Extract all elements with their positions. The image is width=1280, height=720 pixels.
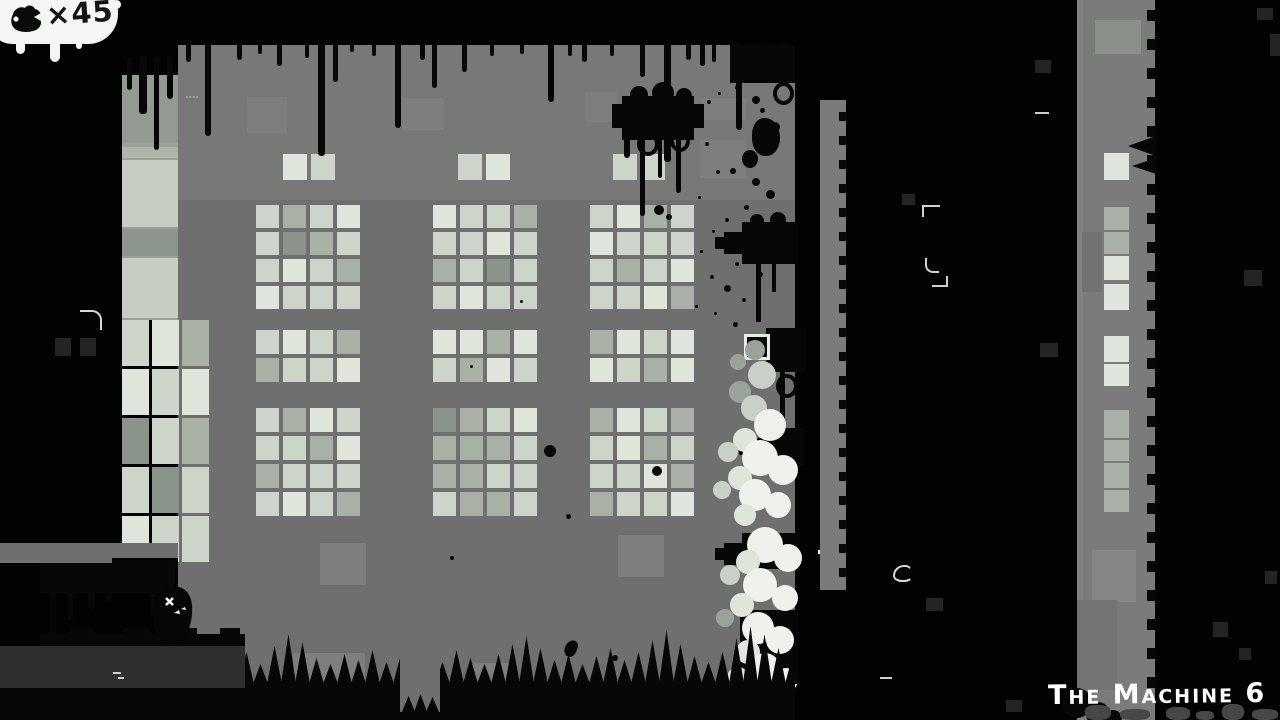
tower-tooth — [1147, 387, 1156, 398]
big-window — [460, 464, 483, 488]
big-window — [256, 408, 279, 432]
big-window — [283, 286, 306, 309]
big-window — [487, 286, 510, 309]
ink-speck — [752, 178, 760, 186]
ledge-white-speck — [118, 677, 124, 679]
big-window — [460, 205, 483, 228]
big-window — [256, 205, 279, 228]
big-window — [671, 492, 694, 516]
ink-speck — [752, 96, 760, 104]
machine-bump — [652, 82, 674, 104]
ladder-notch — [839, 304, 847, 313]
big-window — [514, 286, 537, 309]
ceiling-drip — [333, 44, 338, 82]
tower-tooth — [1147, 39, 1156, 50]
tower-window — [1104, 364, 1129, 386]
left-column-pane-grid — [122, 320, 149, 366]
left-column-pane — [122, 258, 178, 318]
foam-bubble — [765, 492, 791, 518]
ink-speck — [725, 218, 729, 222]
foam-bubble — [734, 504, 756, 526]
foam-bubble — [768, 455, 798, 485]
big-window — [644, 436, 667, 460]
ceiling-drip — [712, 44, 716, 62]
ink-speck — [707, 100, 711, 104]
big-window — [671, 259, 694, 282]
foam-bubble — [754, 409, 786, 441]
mid-window — [256, 358, 279, 382]
ink-speck — [744, 205, 749, 210]
mid-window — [283, 358, 306, 382]
machine-hook-ring — [670, 130, 690, 152]
machine-bump — [676, 88, 692, 104]
big-window — [433, 259, 456, 282]
big-window — [514, 408, 537, 432]
game-viewport[interactable]: ×45 The Machine 6 — [0, 0, 1280, 720]
mid-window — [644, 358, 667, 382]
ceiling-drip — [350, 44, 354, 52]
big-window — [644, 408, 667, 432]
ceiling-drip — [420, 44, 425, 60]
big-window — [671, 232, 694, 255]
void-square — [926, 598, 943, 611]
ladder-notch — [839, 184, 847, 193]
big-window — [644, 232, 667, 255]
ladder-notch — [839, 352, 847, 361]
chain-decal — [925, 258, 939, 273]
ink-speck — [705, 142, 709, 146]
tower-light-patch — [1092, 550, 1136, 602]
big-window — [590, 286, 613, 309]
big-window — [617, 408, 640, 432]
foam-bubble — [716, 609, 734, 627]
ledge-dark-floor — [0, 646, 245, 690]
big-window — [310, 232, 333, 255]
left-column-pane-grid — [152, 467, 179, 513]
ceiling-drip — [318, 44, 325, 156]
big-window — [617, 492, 640, 516]
ladder-notch — [839, 448, 847, 457]
tower-window — [1104, 440, 1129, 461]
ink-speck — [714, 312, 717, 315]
machine-bump — [770, 212, 786, 228]
ink-speck — [766, 190, 775, 199]
ink-speck — [735, 262, 739, 266]
tower-tooth — [1147, 445, 1156, 456]
left-column-pane-grid — [182, 516, 209, 562]
big-window — [337, 205, 360, 228]
big-window — [337, 464, 360, 488]
left-column-pane-grid — [122, 369, 149, 415]
big-window — [433, 232, 456, 255]
mid-window — [487, 358, 510, 382]
big-window — [617, 464, 640, 488]
mid-window — [460, 358, 483, 382]
void-square — [1239, 648, 1251, 660]
hud-bubble-drip — [16, 40, 25, 54]
big-window — [337, 232, 360, 255]
ground-ink-left — [0, 688, 245, 720]
big-window — [671, 408, 694, 432]
wall-light-patch — [320, 543, 366, 585]
big-window — [514, 492, 537, 516]
foam-bubble — [730, 354, 746, 370]
collectible-counter-bubble: ×45 — [0, 0, 118, 44]
mid-window — [310, 330, 333, 354]
tower-window — [1104, 336, 1129, 362]
ink-speck — [712, 230, 715, 233]
tower-tooth — [1147, 358, 1156, 369]
foam-bubble — [748, 361, 776, 389]
big-window — [256, 259, 279, 282]
mid-window — [644, 330, 667, 354]
big-window — [617, 286, 640, 309]
big-window — [433, 464, 456, 488]
machine-nozzle — [724, 232, 744, 254]
big-window — [310, 436, 333, 460]
foam-bubble — [774, 544, 802, 572]
ink-speck — [654, 205, 664, 215]
left-column-pane-grid — [122, 418, 149, 464]
big-window — [337, 436, 360, 460]
ink-speck — [666, 214, 672, 220]
ladder-notch — [839, 544, 847, 553]
left-column-pane-grid — [182, 320, 209, 366]
ink-speck — [450, 556, 454, 560]
ink-speck — [718, 92, 721, 95]
ceiling-drip — [127, 58, 132, 90]
void-square — [1035, 60, 1051, 73]
ink-speck — [700, 250, 703, 253]
big-window — [460, 492, 483, 516]
ladder-notch — [839, 568, 847, 577]
ceiling-drip — [610, 44, 614, 56]
tower-tooth — [1147, 590, 1156, 601]
big-window — [283, 436, 306, 460]
mid-window — [337, 330, 360, 354]
ladder-notch — [839, 232, 847, 241]
tower-tooth — [1147, 532, 1156, 543]
ceiling-drip — [154, 58, 159, 150]
hud-bubble-droplet — [112, 0, 121, 9]
mid-window — [337, 358, 360, 382]
ceiling-drip — [700, 44, 705, 66]
mid-window — [310, 358, 333, 382]
ceiling-drip — [186, 44, 191, 62]
big-window — [671, 205, 694, 228]
big-window — [310, 205, 333, 228]
ladder-strip — [820, 100, 846, 590]
ink-speck — [695, 305, 698, 308]
tower-tooth — [1147, 184, 1156, 195]
machine-drip — [756, 264, 761, 322]
wall-light-patch — [402, 98, 444, 130]
tower-tooth — [1147, 97, 1156, 108]
mid-window — [671, 330, 694, 354]
big-window — [283, 408, 306, 432]
left-column-pane-grid — [182, 467, 209, 513]
big-window — [514, 259, 537, 282]
mid-window — [487, 330, 510, 354]
big-window — [644, 492, 667, 516]
ink-speck — [733, 322, 738, 327]
tower-tooth — [1147, 416, 1156, 427]
wall-light-patch — [247, 97, 287, 133]
collectible-counter: ×45 — [0, 0, 118, 44]
tower-window — [1104, 490, 1129, 512]
ladder-notch — [839, 472, 847, 481]
big-window — [590, 232, 613, 255]
ink-speck — [698, 196, 701, 199]
machine-bump — [750, 214, 764, 228]
left-column-pane-grid — [182, 418, 209, 464]
tower-dark-patch — [1077, 600, 1117, 690]
chain-decal — [932, 276, 948, 287]
big-window — [310, 492, 333, 516]
void-square — [1265, 571, 1277, 584]
ink-speck — [544, 445, 556, 457]
ladder-notch — [839, 136, 847, 145]
tower-tooth — [1147, 126, 1156, 137]
ceiling-drip — [782, 44, 787, 70]
left-column-pane-grid — [152, 369, 179, 415]
tower-faint-window — [1095, 20, 1141, 54]
big-window — [256, 464, 279, 488]
level-name-label: The Machine 6 — [1048, 678, 1267, 711]
ink-speck — [710, 275, 714, 279]
big-window — [256, 492, 279, 516]
big-window — [644, 259, 667, 282]
void-square — [1270, 34, 1280, 56]
big-window — [644, 286, 667, 309]
small-window — [311, 154, 335, 180]
big-window — [433, 436, 456, 460]
ladder-notch — [839, 328, 847, 337]
void-square — [1213, 622, 1228, 637]
left-column-pane-grid — [122, 467, 149, 513]
tower-window — [1104, 410, 1129, 438]
ceiling-drip — [139, 56, 147, 114]
mid-window — [671, 358, 694, 382]
tower-tooth — [1147, 503, 1156, 514]
ink-speck — [716, 170, 720, 174]
big-window — [460, 286, 483, 309]
ladder-notch — [839, 160, 847, 169]
hud-bubble-drip — [76, 40, 82, 49]
wall-light-patch — [618, 535, 664, 577]
big-window — [256, 232, 279, 255]
big-window — [487, 492, 510, 516]
big-window — [337, 286, 360, 309]
big-window — [617, 232, 640, 255]
big-window — [514, 464, 537, 488]
ceiling-drip — [277, 44, 282, 66]
left-column-pane — [122, 147, 178, 158]
machine-drip — [624, 138, 630, 158]
foam-bubble — [745, 340, 765, 360]
big-window — [487, 232, 510, 255]
big-window — [433, 408, 456, 432]
hud-bubble-drip — [50, 40, 60, 62]
big-window — [460, 408, 483, 432]
mid-window — [590, 358, 613, 382]
mid-window — [460, 330, 483, 354]
left-column-pane-grid — [152, 320, 179, 366]
big-window — [433, 286, 456, 309]
big-window — [337, 259, 360, 282]
ladder-notch — [839, 400, 847, 409]
big-window — [590, 205, 613, 228]
small-window — [283, 154, 307, 180]
machine-drip — [772, 264, 776, 292]
machine-flange — [612, 104, 624, 128]
tower-window — [1104, 232, 1129, 254]
ink-speck — [760, 108, 765, 113]
tower-tooth — [1147, 474, 1156, 485]
machine-nozzle-tip — [715, 548, 725, 560]
chain-decal — [922, 205, 940, 217]
big-window — [514, 436, 537, 460]
tower-tooth — [1147, 619, 1156, 630]
big-window — [310, 286, 333, 309]
big-window — [460, 436, 483, 460]
overhang-drip — [106, 590, 111, 602]
ceiling-drip — [432, 44, 437, 88]
ink-speck — [724, 285, 731, 292]
chain-decal — [893, 565, 913, 582]
tower-dark-patch — [1082, 232, 1102, 292]
big-window — [433, 205, 456, 228]
ladder-notch — [839, 424, 847, 433]
ink-splat — [742, 150, 758, 168]
machine-hook-ring — [773, 82, 794, 105]
ceiling-drip — [395, 44, 401, 128]
foam-bubble — [713, 481, 731, 499]
big-window — [256, 286, 279, 309]
mid-window — [433, 330, 456, 354]
wall-marks — [186, 88, 198, 98]
chain-decal — [1035, 105, 1049, 114]
ceiling-drip — [258, 44, 262, 54]
ink-speck — [730, 168, 736, 174]
ceiling-drip — [372, 44, 376, 56]
big-window — [460, 259, 483, 282]
ceiling-drip — [568, 44, 572, 56]
big-window — [337, 492, 360, 516]
void-square — [1040, 343, 1058, 357]
machine-hook-ring — [637, 132, 659, 156]
big-window — [514, 205, 537, 228]
ceiling-drip — [205, 44, 211, 136]
big-window — [617, 436, 640, 460]
ceiling-drip — [548, 44, 554, 102]
void-square — [1244, 270, 1262, 286]
left-column-pane-grid — [152, 418, 179, 464]
big-window — [514, 232, 537, 255]
ceiling-drip — [305, 44, 309, 58]
overhang-drip — [50, 591, 56, 639]
ceiling-drip — [520, 44, 524, 54]
big-window — [310, 464, 333, 488]
void-square — [55, 338, 71, 356]
machine-flange — [692, 104, 704, 128]
mid-window — [514, 330, 537, 354]
big-window — [590, 408, 613, 432]
ceiling-drip — [686, 44, 691, 60]
big-window — [310, 259, 333, 282]
foam-bubble — [766, 626, 794, 654]
ink-speck — [520, 300, 523, 303]
ceiling-drip — [237, 44, 242, 60]
player-character — [150, 585, 198, 645]
big-window — [487, 408, 510, 432]
mid-window — [590, 330, 613, 354]
tower-tooth — [1147, 271, 1156, 282]
tower-window — [1104, 256, 1129, 280]
tower-tooth — [1147, 329, 1156, 340]
void-square — [80, 338, 96, 356]
big-window — [283, 259, 306, 282]
ladder-notch — [839, 112, 847, 121]
ground-silhouette — [1252, 709, 1278, 720]
mid-window — [256, 330, 279, 354]
small-window — [458, 154, 482, 180]
big-window — [590, 464, 613, 488]
ladder-notch — [839, 280, 847, 289]
tower-window — [1104, 463, 1129, 488]
left-column-pane — [122, 160, 178, 227]
big-window — [283, 205, 306, 228]
ground-silhouette — [1196, 711, 1214, 720]
big-window — [283, 492, 306, 516]
mid-window — [283, 330, 306, 354]
big-window — [617, 259, 640, 282]
mid-window — [617, 330, 640, 354]
big-window — [310, 408, 333, 432]
big-window — [283, 232, 306, 255]
big-window — [283, 464, 306, 488]
collectible-count: ×45 — [45, 0, 115, 32]
overhang-drip — [68, 591, 73, 621]
left-column-pane — [122, 229, 178, 256]
mid-window — [617, 358, 640, 382]
void-square — [1006, 700, 1022, 712]
foam-bubble — [718, 442, 738, 462]
ink-speck — [735, 85, 740, 90]
wall-machine — [742, 222, 798, 264]
small-window — [486, 154, 510, 180]
big-window — [487, 205, 510, 228]
ceiling-drip — [582, 44, 587, 62]
foam-bubble — [772, 585, 798, 611]
ladder-notch — [839, 496, 847, 505]
big-window — [433, 492, 456, 516]
tower-window — [1104, 284, 1129, 310]
tower-tooth — [1147, 561, 1156, 572]
void-square — [902, 194, 915, 205]
machine-hook-ring — [776, 374, 798, 398]
left-column-pane-grid — [182, 369, 209, 415]
tower-tooth — [1147, 648, 1156, 659]
big-window — [671, 436, 694, 460]
void-square — [1257, 8, 1273, 20]
ground-ink — [200, 682, 795, 720]
ink-speck — [566, 514, 571, 519]
ladder-notch — [839, 256, 847, 265]
mid-window — [514, 358, 537, 382]
big-window — [487, 464, 510, 488]
big-window — [487, 259, 510, 282]
